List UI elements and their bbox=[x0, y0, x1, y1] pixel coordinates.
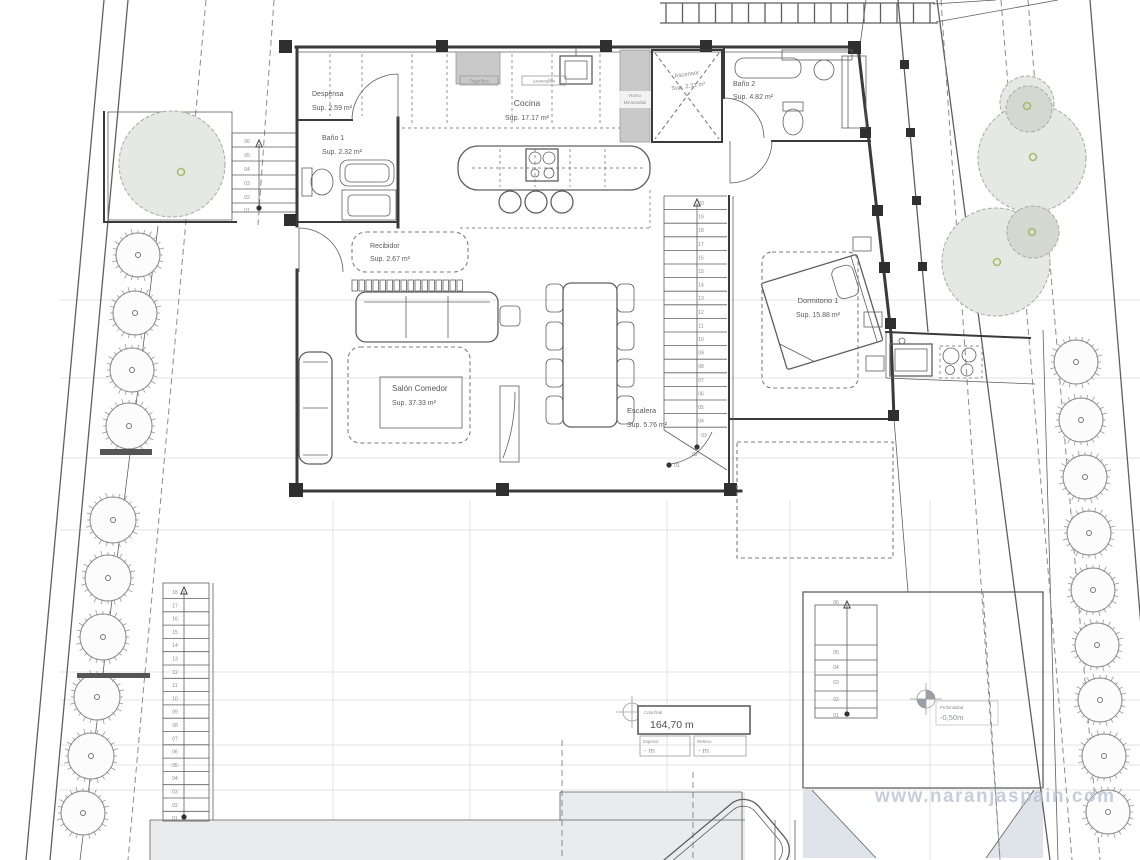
room-salon: Salón Comedor Sup. 37.33 m² bbox=[299, 280, 634, 464]
room-despensa: Despensa Sup. 2.59 m² bbox=[312, 54, 398, 120]
room-bano2: Baño 2 Sup. 4.82 m² bbox=[724, 50, 866, 138]
room-cocina: Frigorífico Lavavajillas Horno Microonda… bbox=[402, 47, 651, 228]
svg-text:09: 09 bbox=[172, 710, 178, 716]
side-table bbox=[500, 306, 520, 326]
svg-text:15: 15 bbox=[172, 630, 178, 636]
elevator: Ascensor Sup. 2.31 m² bbox=[652, 50, 722, 142]
dining-table bbox=[563, 283, 617, 427]
room-label-ascensor: Ascensor bbox=[674, 70, 700, 79]
svg-text:06: 06 bbox=[172, 750, 178, 756]
nightstand bbox=[866, 356, 884, 371]
svg-text:02: 02 bbox=[833, 697, 839, 703]
tv-unit bbox=[500, 386, 519, 462]
cota-value: 164,70 m bbox=[650, 719, 694, 731]
svg-text:13: 13 bbox=[172, 657, 178, 663]
dining-chairs bbox=[546, 284, 634, 424]
svg-text:03: 03 bbox=[701, 433, 707, 439]
room-label-bano1: Baño 1 bbox=[322, 135, 344, 142]
cota-right-value: - m bbox=[698, 746, 709, 755]
room-label-bano2: Baño 2 bbox=[733, 81, 755, 88]
svg-text:02: 02 bbox=[244, 195, 250, 201]
svg-text:03: 03 bbox=[244, 181, 250, 187]
construction-grid bbox=[60, 300, 1140, 860]
svg-text:08: 08 bbox=[698, 364, 704, 370]
room-area-ascensor: Sup. 2.31 m² bbox=[671, 82, 706, 93]
svg-text:10: 10 bbox=[698, 337, 704, 343]
radiator-row bbox=[352, 280, 463, 291]
svg-text:05: 05 bbox=[244, 153, 250, 159]
svg-text:05: 05 bbox=[172, 763, 178, 769]
svg-text:01: 01 bbox=[674, 463, 680, 469]
room-label-dormitorio1: Dormitorio 1 bbox=[798, 296, 839, 305]
wall-pillars bbox=[279, 40, 927, 497]
cota-left-value: - m bbox=[644, 746, 655, 755]
nightstand bbox=[864, 312, 882, 327]
cota-box: Cota final 164,70 m Espesor - m Relleno … bbox=[616, 696, 750, 756]
svg-text:09: 09 bbox=[698, 351, 704, 357]
svg-text:01: 01 bbox=[172, 816, 178, 822]
ramp-left bbox=[803, 788, 876, 858]
svg-text:15: 15 bbox=[698, 269, 704, 275]
lower-terrace bbox=[803, 592, 1043, 788]
depth-label: Profundidad bbox=[940, 705, 964, 710]
svg-text:06: 06 bbox=[833, 600, 839, 606]
room-label-cocina: Cocina bbox=[514, 98, 541, 108]
svg-text:14: 14 bbox=[172, 643, 178, 649]
svg-text:12: 12 bbox=[698, 310, 704, 316]
bbq-grill bbox=[940, 346, 982, 378]
room-area-salon: Sup. 37.33 m² bbox=[392, 400, 437, 407]
appliance-label-dishwasher: Lavavajillas bbox=[533, 79, 555, 84]
svg-text:01: 01 bbox=[833, 713, 839, 719]
room-bano1: Baño 1 Sup. 2.32 m² bbox=[302, 135, 396, 220]
svg-text:19: 19 bbox=[698, 215, 704, 221]
depth-value: -0,50m bbox=[940, 713, 963, 722]
trees bbox=[119, 76, 1086, 316]
svg-text:01: 01 bbox=[244, 208, 250, 214]
stool bbox=[525, 191, 547, 213]
outdoor-kitchen bbox=[886, 332, 1035, 384]
room-area-dormitorio1: Sup. 15.88 m² bbox=[796, 312, 841, 319]
room-area-despensa: Sup. 2.59 m² bbox=[312, 105, 353, 112]
svg-text:17: 17 bbox=[172, 603, 178, 609]
svg-text:02: 02 bbox=[172, 803, 178, 809]
exterior-walls bbox=[296, 47, 894, 491]
svg-text:10: 10 bbox=[172, 696, 178, 702]
svg-text:12: 12 bbox=[172, 670, 178, 676]
room-area-bano2: Sup. 4.82 m² bbox=[733, 94, 774, 101]
retaining-wall-hatch bbox=[660, 0, 1058, 23]
svg-text:04: 04 bbox=[172, 776, 178, 782]
svg-text:07: 07 bbox=[698, 378, 704, 384]
svg-text:13: 13 bbox=[698, 296, 704, 302]
car-bay-pavement bbox=[560, 792, 745, 860]
room-dormitorio1: Dormitorio 1 Sup. 15.88 m² bbox=[730, 141, 893, 558]
svg-text:05: 05 bbox=[698, 405, 704, 411]
room-label-salon: Salón Comedor bbox=[392, 384, 448, 393]
kitchen-island bbox=[458, 146, 650, 228]
svg-text:06: 06 bbox=[244, 139, 250, 145]
depth-marker: Profundidad -0,50m bbox=[910, 683, 998, 725]
room-area-recibidor: Sup. 2.67 m² bbox=[370, 256, 411, 263]
main-staircase: 2019181716151413121110090807060504030201 bbox=[664, 196, 727, 470]
room-label-recibidor: Recibidor bbox=[370, 243, 400, 250]
appliance-label-oven: Horno bbox=[629, 93, 641, 98]
garden-staircase: 181716151413121110090807060504030201 bbox=[163, 583, 213, 822]
svg-text:16: 16 bbox=[698, 255, 704, 261]
room-label-despensa: Despensa bbox=[312, 91, 344, 98]
garden-shrubs bbox=[57, 229, 1134, 839]
cota-right-label: Relleno bbox=[697, 739, 712, 744]
svg-text:06: 06 bbox=[698, 391, 704, 397]
svg-text:04: 04 bbox=[244, 167, 250, 173]
room-area-escalera: Sup. 5.76 m² bbox=[627, 422, 668, 429]
pillow bbox=[830, 263, 860, 300]
svg-text:03: 03 bbox=[172, 790, 178, 796]
appliance-label-microwave: Microondas bbox=[624, 100, 646, 105]
svg-text:04: 04 bbox=[698, 419, 704, 425]
svg-text:18: 18 bbox=[698, 228, 704, 234]
nightstand bbox=[853, 237, 871, 251]
cota-title: Cota final bbox=[644, 710, 662, 715]
svg-text:16: 16 bbox=[172, 617, 178, 623]
room-area-cocina: Sup. 17.17 m² bbox=[505, 115, 550, 122]
room-label-escalera: Escalera bbox=[627, 406, 657, 415]
svg-text:11: 11 bbox=[698, 323, 703, 329]
room-area-bano1: Sup. 2.32 m² bbox=[322, 149, 363, 156]
svg-text:08: 08 bbox=[172, 723, 178, 729]
svg-text:17: 17 bbox=[698, 242, 704, 248]
cota-left-label: Espesor bbox=[643, 739, 659, 744]
svg-text:07: 07 bbox=[172, 736, 178, 742]
stool bbox=[551, 191, 573, 213]
appliance-label-fridge: Frigorífico bbox=[469, 79, 489, 84]
terrace-staircase: 060504030201 bbox=[815, 600, 877, 719]
svg-text:04: 04 bbox=[833, 665, 839, 671]
entry-steps: 060504030201 bbox=[232, 133, 297, 214]
svg-text:11: 11 bbox=[172, 683, 177, 689]
room-recibidor: Recibidor Sup. 2.67 m² bbox=[299, 228, 468, 272]
svg-text:03: 03 bbox=[833, 680, 839, 686]
house: Despensa Sup. 2.59 m² Baño 1 Sup. 2.32 m… bbox=[279, 40, 927, 558]
floor-plan-canvas: 060504030201 bbox=[0, 0, 1140, 860]
svg-text:18: 18 bbox=[172, 590, 178, 596]
svg-text:05: 05 bbox=[833, 650, 839, 656]
svg-text:14: 14 bbox=[698, 283, 704, 289]
stool bbox=[499, 191, 521, 213]
watermark: www.naranjaspain.com bbox=[874, 786, 1115, 807]
